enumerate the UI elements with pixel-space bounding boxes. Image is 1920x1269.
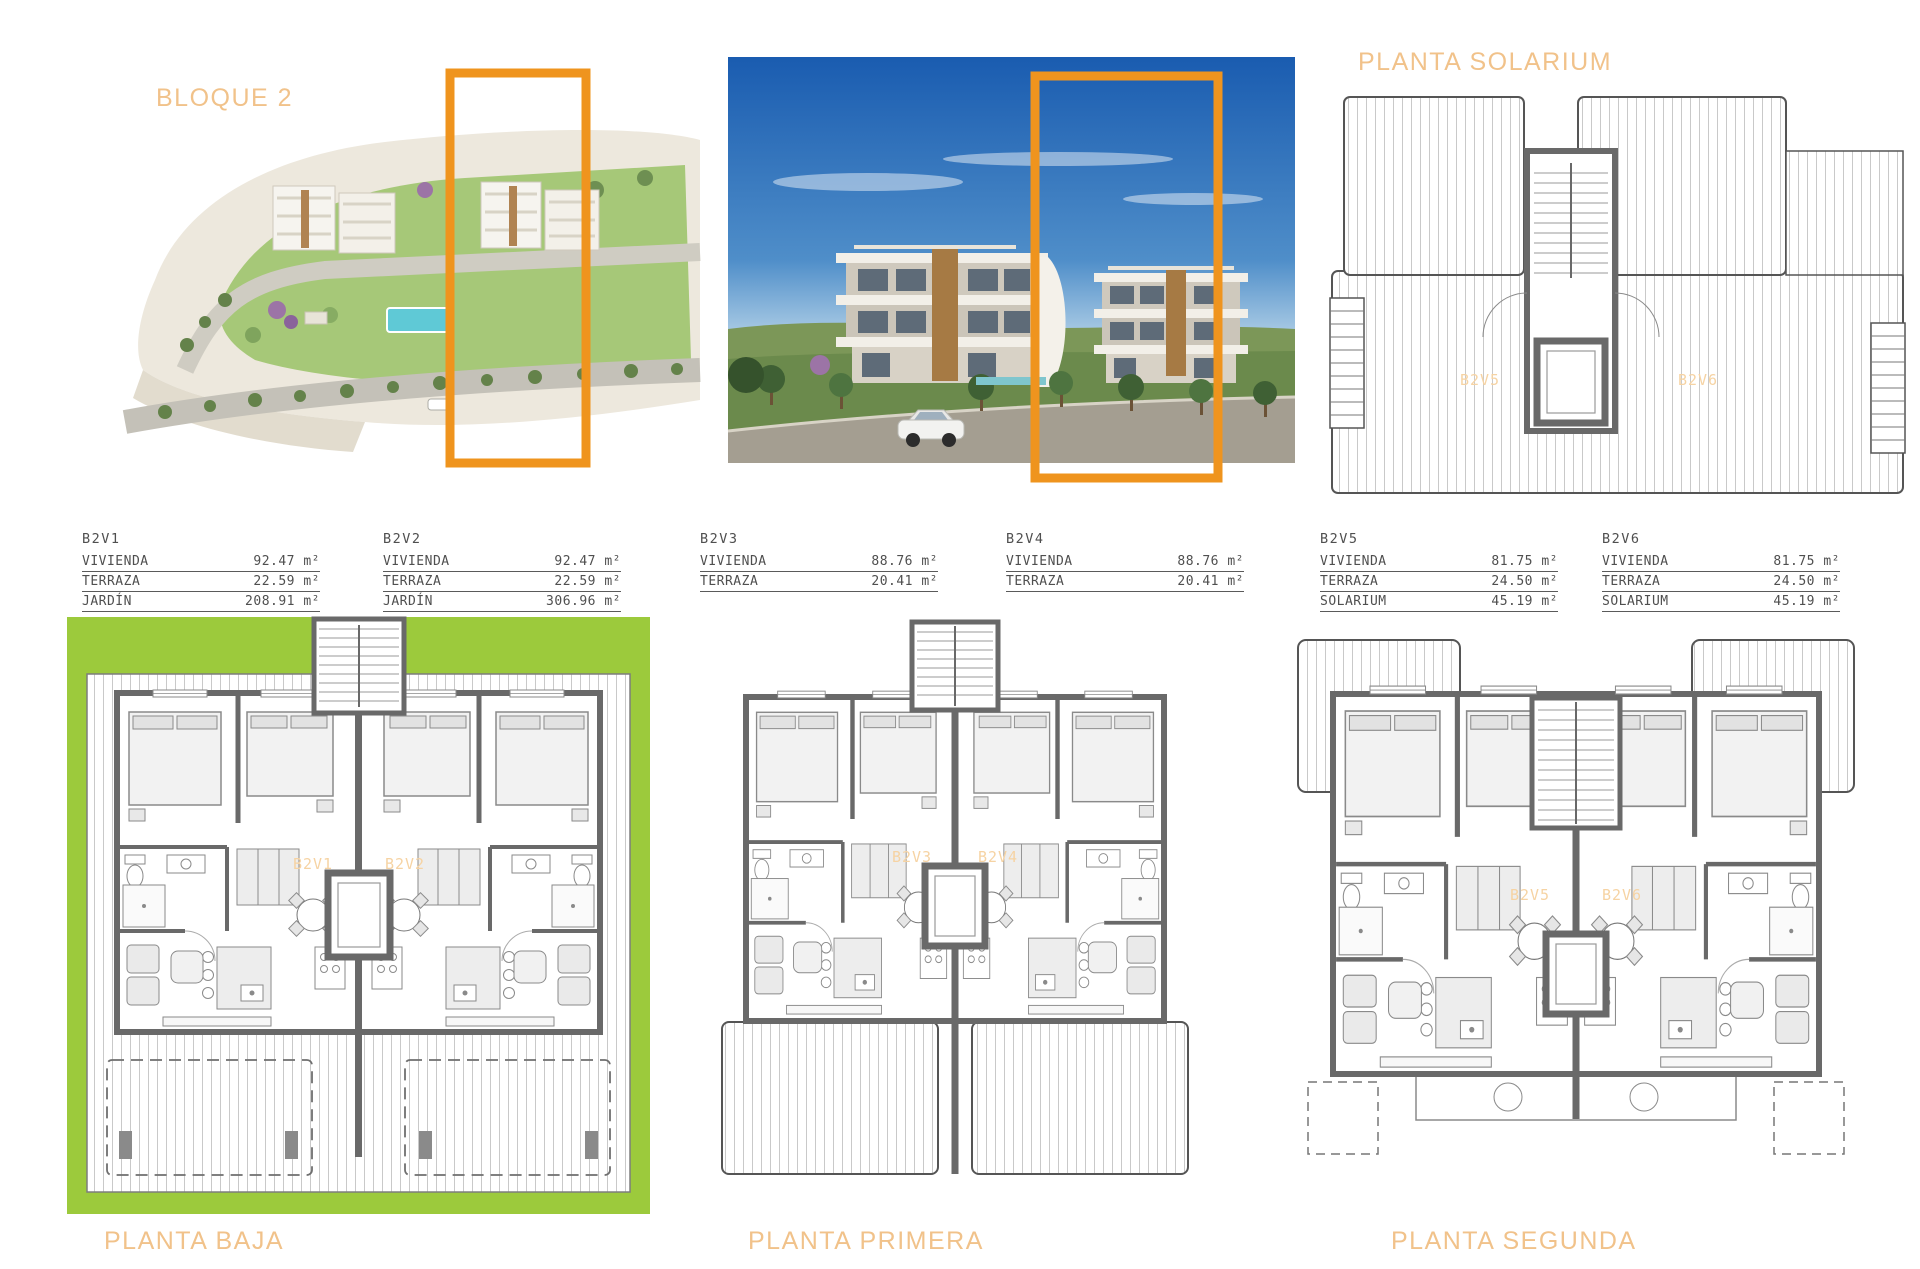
table-row: TERRAZA22.59 m² — [82, 572, 320, 592]
aerial-render — [125, 73, 700, 463]
exterior-stair-left — [1330, 298, 1364, 428]
bloque-title: BLOQUE 2 — [156, 84, 293, 113]
primera-unit-label-right: B2V4 — [978, 848, 1018, 866]
plan-solarium: B2V5 B2V6 — [1330, 97, 1905, 493]
unit-table-b2v2: B2V2 VIVIENDA92.47 m² TERRAZA22.59 m² JA… — [383, 531, 621, 612]
exterior-stair-right — [1871, 323, 1905, 453]
aerial-pool — [387, 308, 451, 332]
table-row: TERRAZA20.41 m² — [1006, 572, 1244, 592]
plan-segunda: B2V5 B2V6 — [1298, 640, 1854, 1154]
table-row: JARDÍN208.91 m² — [82, 592, 320, 612]
unit-id: B2V3 — [700, 531, 938, 547]
table-row: VIVIENDA81.75 m² — [1320, 552, 1558, 572]
unit-table-b2v3: B2V3 VIVIENDA88.76 m² TERRAZA20.41 m² — [700, 531, 938, 592]
stair-core — [1532, 698, 1620, 828]
photo-building-right — [1094, 266, 1248, 383]
photo-render — [728, 57, 1295, 463]
primera-title: PLANTA PRIMERA — [748, 1227, 984, 1256]
segunda-unit-label-right: B2V6 — [1602, 886, 1642, 904]
table-row: TERRAZA20.41 m² — [700, 572, 938, 592]
solarium-unit-label-right: B2V6 — [1678, 371, 1718, 389]
aerial-building-right — [481, 182, 599, 250]
baja-title: PLANTA BAJA — [104, 1227, 284, 1256]
baja-unit-label-right: B2V2 — [385, 855, 425, 873]
stair-core — [912, 622, 998, 710]
table-row: JARDÍN306.96 m² — [383, 592, 621, 612]
unit-table-b2v5: B2V5 VIVIENDA81.75 m² TERRAZA24.50 m² SO… — [1320, 531, 1558, 612]
elevator — [328, 873, 390, 957]
unit-id: B2V4 — [1006, 531, 1244, 547]
segunda-title: PLANTA SEGUNDA — [1391, 1227, 1637, 1256]
table-row: TERRAZA24.50 m² — [1602, 572, 1840, 592]
aerial-building-left — [273, 186, 395, 253]
plan-baja: B2V1 B2V2 — [67, 617, 650, 1214]
stair-core — [314, 619, 404, 713]
elevator — [1546, 934, 1606, 1014]
segunda-unit-label-left: B2V5 — [1510, 886, 1550, 904]
table-row: TERRAZA22.59 m² — [383, 572, 621, 592]
plan-sheet: B2V5 B2V6 B2V1 — [0, 0, 1920, 1269]
unit-id: B2V1 — [82, 531, 320, 547]
table-row: VIVIENDA88.76 m² — [1006, 552, 1244, 572]
baja-unit-label-left: B2V1 — [293, 855, 333, 873]
solarium-unit-label-left: B2V5 — [1460, 371, 1500, 389]
elevator — [925, 866, 985, 946]
unit-id: B2V5 — [1320, 531, 1558, 547]
unit-id: B2V6 — [1602, 531, 1840, 547]
solarium-title: PLANTA SOLARIUM — [1358, 48, 1612, 77]
plan-primera: B2V3 B2V4 — [722, 622, 1188, 1174]
primera-unit-label-left: B2V3 — [892, 848, 932, 866]
table-row: VIVIENDA92.47 m² — [82, 552, 320, 572]
table-row: VIVIENDA88.76 m² — [700, 552, 938, 572]
unit-table-b2v4: B2V4 VIVIENDA88.76 m² TERRAZA20.41 m² — [1006, 531, 1244, 592]
table-row: VIVIENDA81.75 m² — [1602, 552, 1840, 572]
drawing-canvas: B2V5 B2V6 B2V1 — [0, 0, 1920, 1269]
unit-table-b2v1: B2V1 VIVIENDA92.47 m² TERRAZA22.59 m² JA… — [82, 531, 320, 612]
unit-id: B2V2 — [383, 531, 621, 547]
table-row: SOLARIUM45.19 m² — [1602, 592, 1840, 612]
table-row: TERRAZA24.50 m² — [1320, 572, 1558, 592]
unit-table-b2v6: B2V6 VIVIENDA81.75 m² TERRAZA24.50 m² SO… — [1602, 531, 1840, 612]
table-row: SOLARIUM45.19 m² — [1320, 592, 1558, 612]
table-row: VIVIENDA92.47 m² — [383, 552, 621, 572]
